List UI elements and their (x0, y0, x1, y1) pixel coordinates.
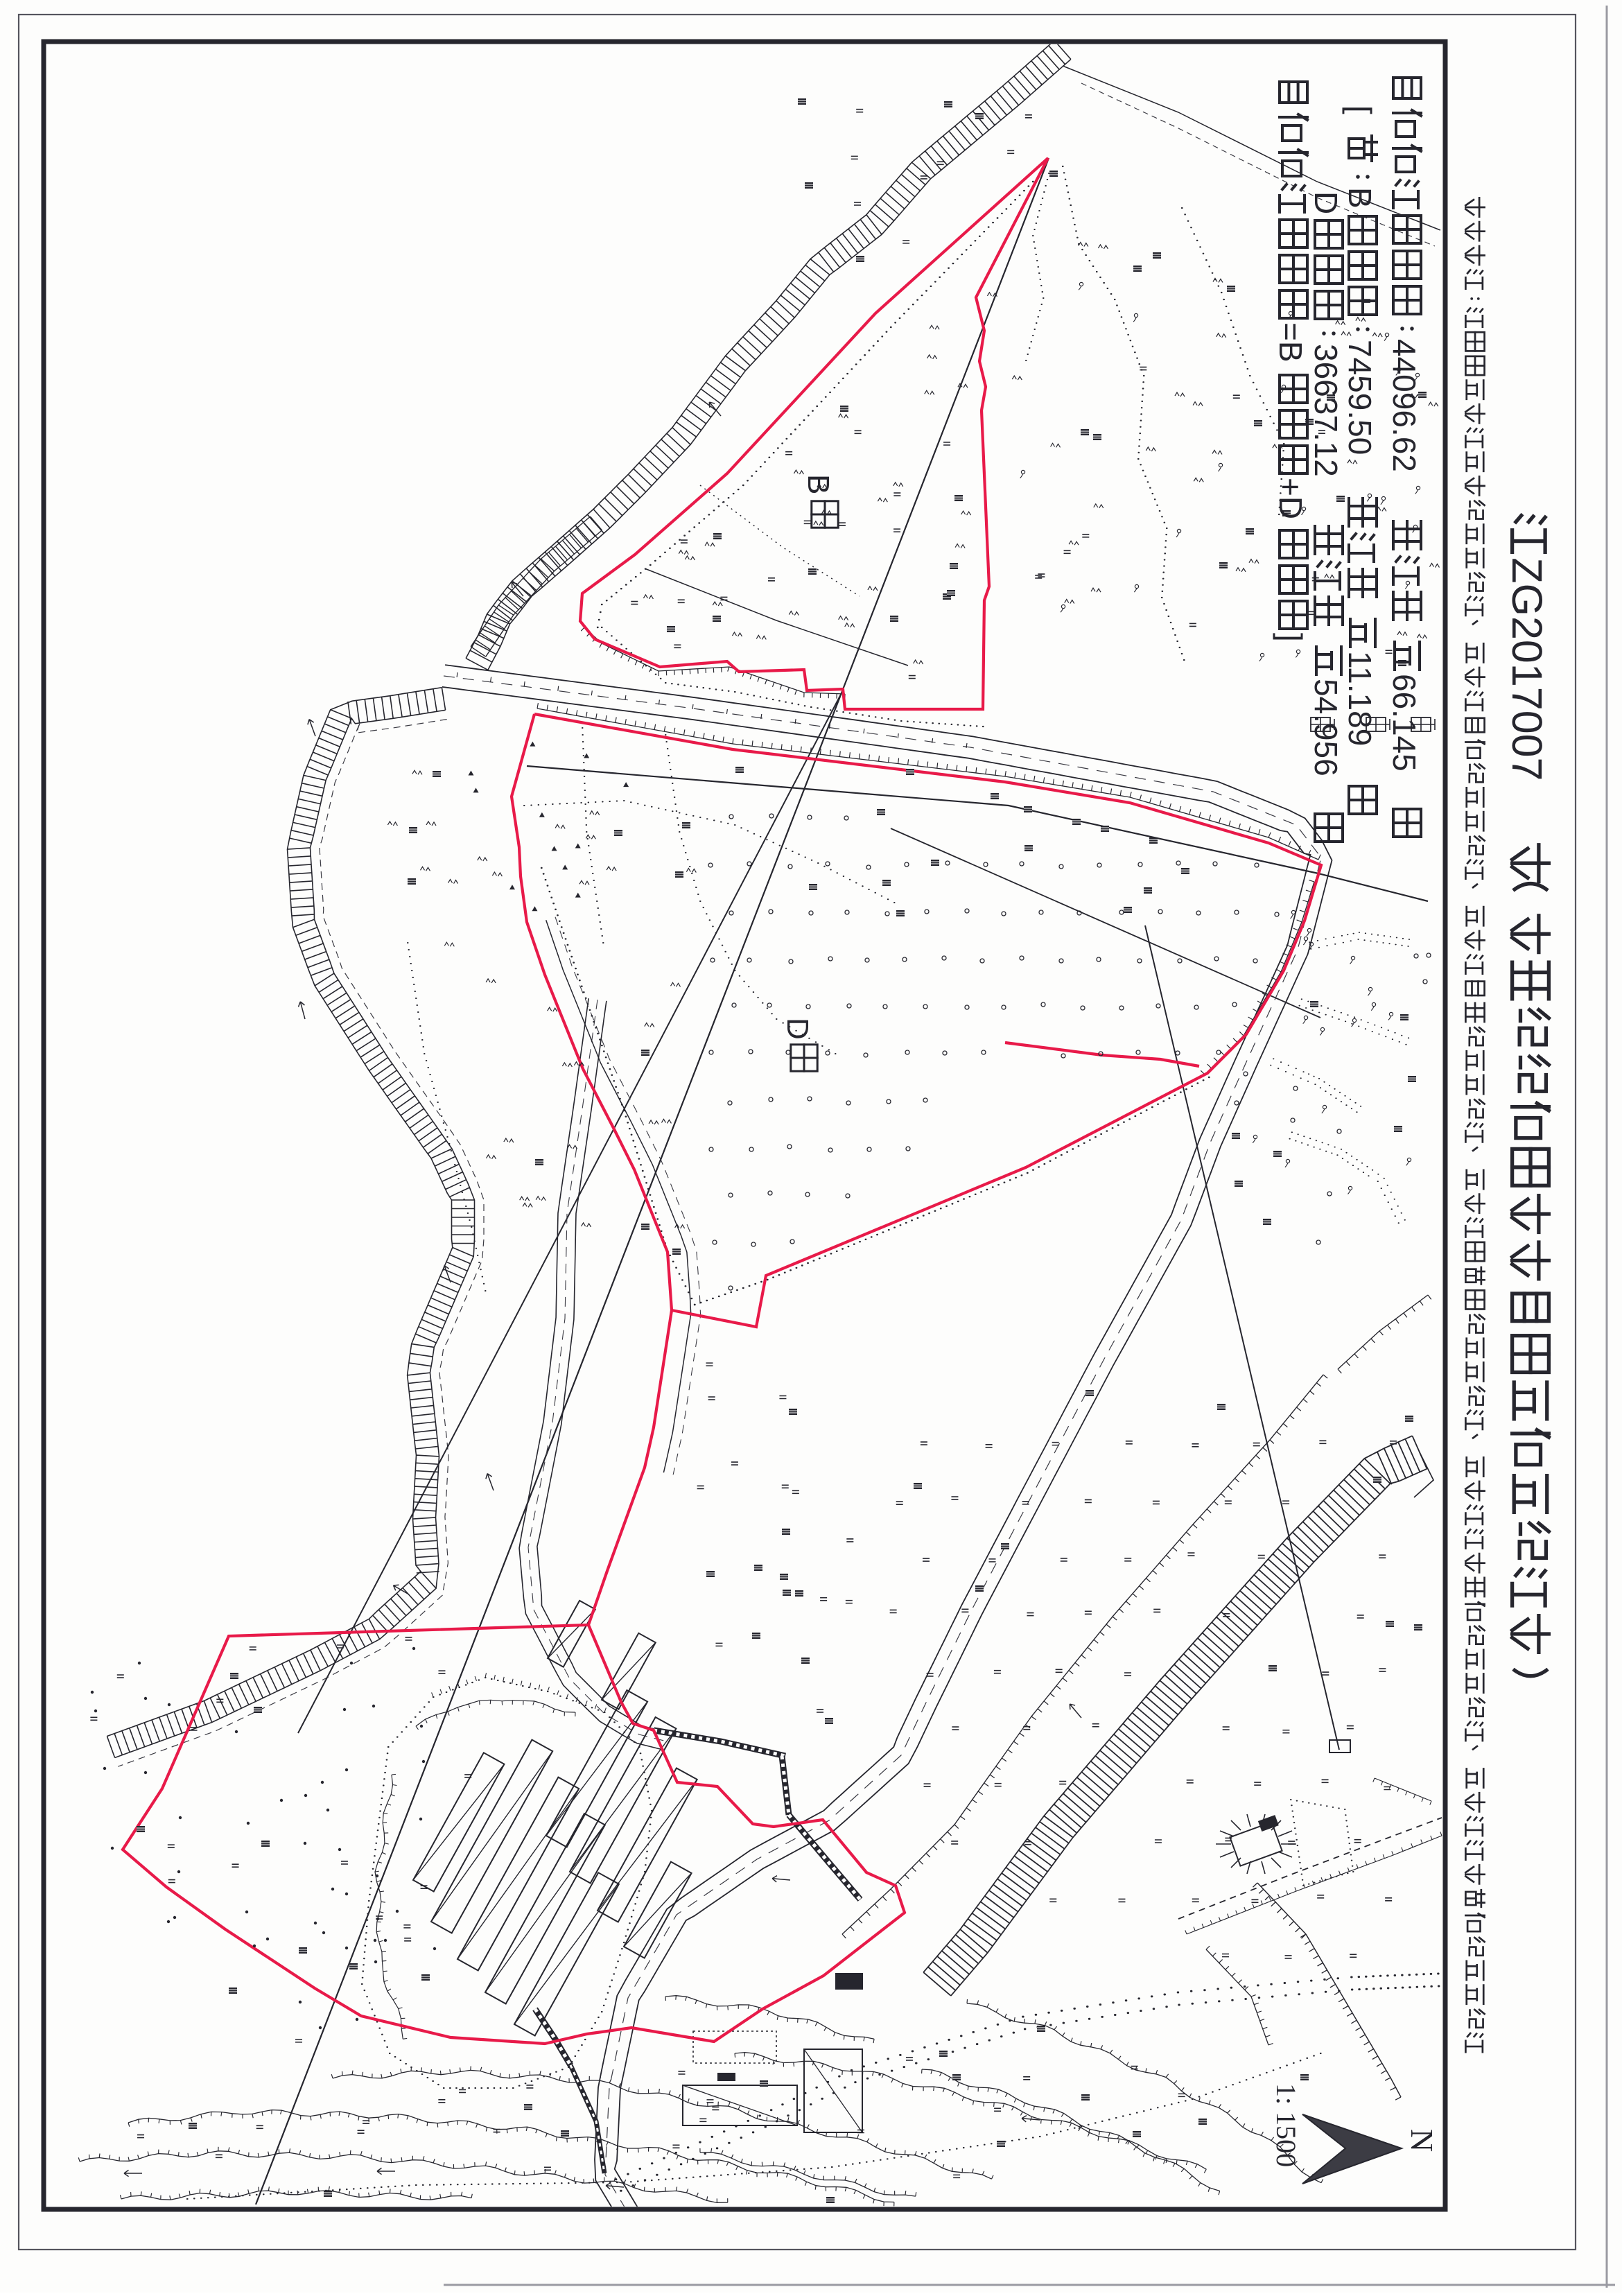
svg-text:D: D (781, 1018, 814, 1040)
svg-text:ZG2017007: ZG2017007 (1503, 557, 1551, 781)
svg-text:36637.12: 36637.12 (1308, 344, 1344, 477)
svg-text:11.189: 11.189 (1342, 651, 1378, 746)
svg-text:N: N (1404, 2129, 1440, 2152)
svg-text:D: D (1308, 191, 1344, 214)
svg-text:44096.62: 44096.62 (1386, 339, 1422, 472)
svg-text:[: [ (1342, 105, 1378, 114)
svg-text:B: B (801, 474, 835, 494)
svg-text:7459.50: 7459.50 (1342, 340, 1378, 455)
svg-text:54.956: 54.956 (1308, 679, 1344, 776)
svg-text:1: 1500: 1: 1500 (1271, 2083, 1302, 2167)
svg-text:B: B (1342, 187, 1378, 209)
svg-text:]: ] (1273, 633, 1309, 642)
svg-text:=B: =B (1273, 322, 1309, 363)
svg-text:+D: +D (1273, 478, 1309, 519)
svg-text:66.145: 66.145 (1386, 674, 1422, 772)
